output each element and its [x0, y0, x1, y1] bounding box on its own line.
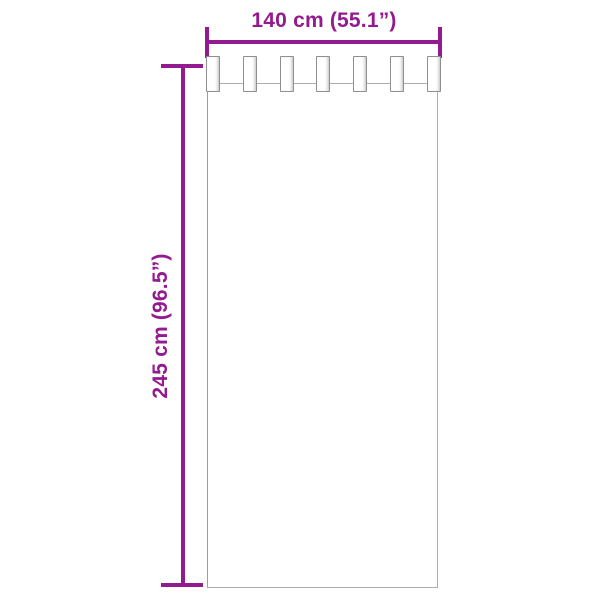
width-dimension-label: 140 cm (55.1”): [207, 9, 441, 33]
curtain-tab: [390, 56, 404, 92]
curtain-tab: [353, 56, 367, 92]
height-dimension-line: [181, 66, 185, 586]
curtain-tab: [280, 56, 294, 92]
curtain-tab: [243, 56, 257, 92]
curtain-tab: [316, 56, 330, 92]
height-dimension-label: 245 cm (96.5”): [149, 253, 173, 398]
height-dimension-cap-bottom: [161, 583, 203, 587]
curtain-tab: [427, 56, 441, 92]
curtain-tabs: [206, 56, 441, 92]
curtain-panel: [207, 83, 438, 588]
height-dimension-cap-top: [161, 64, 203, 68]
width-dimension-line: [207, 40, 441, 44]
product-dimension-diagram: 140 cm (55.1”) 245 cm (96.5”): [0, 0, 600, 600]
curtain-tab: [206, 56, 220, 92]
